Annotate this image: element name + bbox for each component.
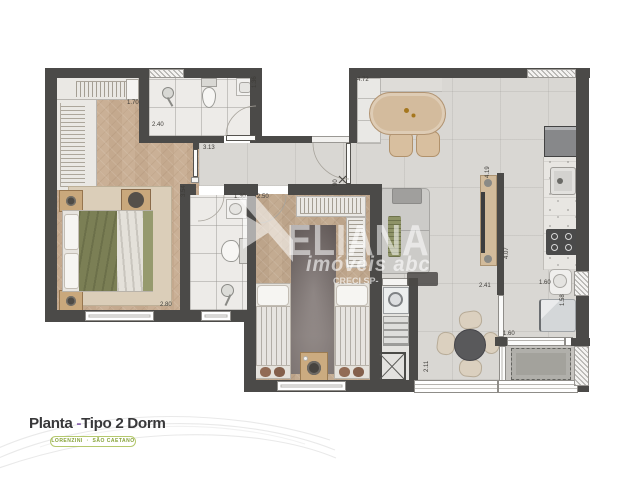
svg-text:CRECI SP-: CRECI SP- bbox=[333, 276, 379, 286]
